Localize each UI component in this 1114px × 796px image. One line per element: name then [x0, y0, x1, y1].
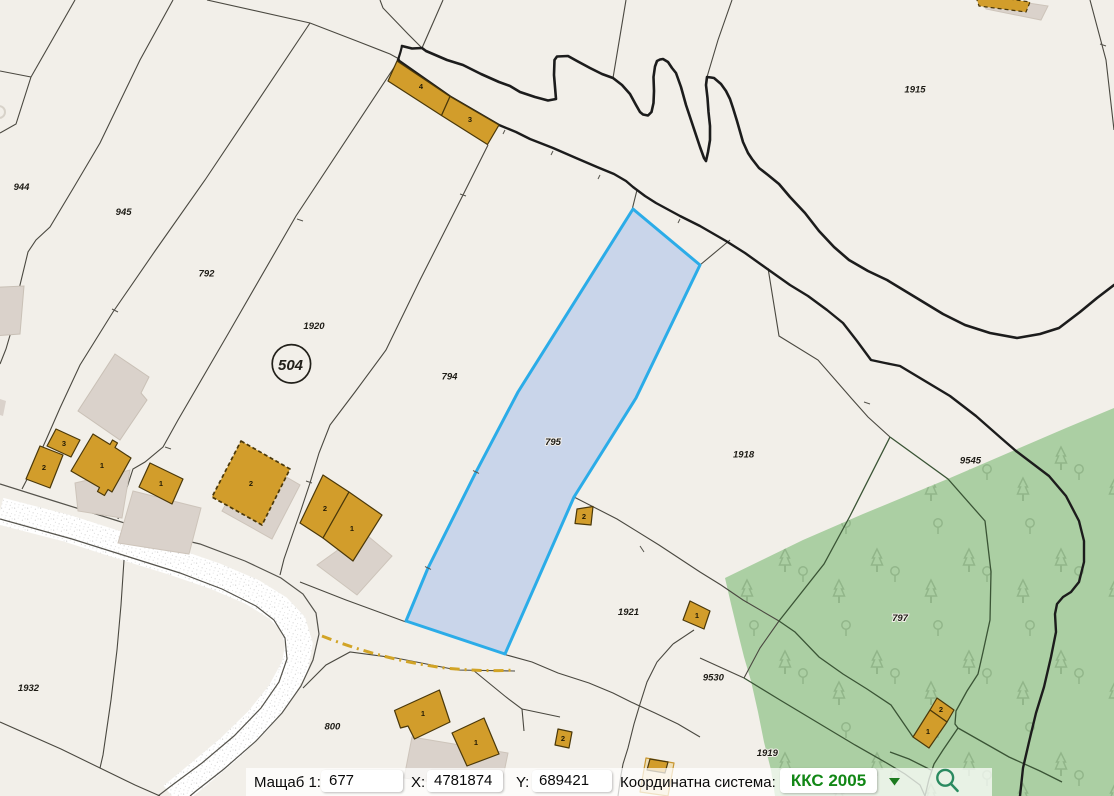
svg-text:1: 1	[350, 524, 354, 533]
svg-text:1920: 1920	[303, 321, 325, 332]
svg-text:1: 1	[421, 709, 425, 718]
svg-text:1918: 1918	[733, 450, 755, 461]
svg-text:1: 1	[474, 738, 478, 747]
svg-text:2: 2	[939, 705, 943, 714]
svg-text:1921: 1921	[618, 607, 639, 618]
svg-text:1: 1	[100, 461, 104, 470]
svg-text:2: 2	[582, 512, 586, 521]
svg-text:9530: 9530	[703, 672, 725, 683]
svg-text:800: 800	[324, 722, 341, 733]
svg-text:1915: 1915	[904, 85, 926, 96]
svg-text:3: 3	[468, 115, 472, 124]
svg-text:2: 2	[249, 479, 253, 488]
svg-text:945: 945	[116, 207, 133, 218]
svg-text:1: 1	[695, 611, 699, 620]
svg-text:792: 792	[199, 269, 216, 280]
svg-text:794: 794	[442, 372, 459, 383]
svg-text:3: 3	[62, 439, 66, 448]
svg-text:1932: 1932	[18, 683, 40, 694]
svg-text:944: 944	[14, 182, 31, 193]
svg-text:9545: 9545	[960, 456, 982, 467]
svg-text:1919: 1919	[757, 748, 779, 759]
svg-text:1: 1	[159, 479, 163, 488]
svg-text:1: 1	[926, 727, 930, 736]
svg-text:2: 2	[323, 504, 327, 513]
svg-text:797: 797	[892, 613, 909, 624]
svg-text:795: 795	[545, 437, 562, 448]
svg-text:504: 504	[278, 357, 304, 374]
svg-text:2: 2	[42, 463, 46, 472]
svg-text:2: 2	[561, 734, 565, 743]
